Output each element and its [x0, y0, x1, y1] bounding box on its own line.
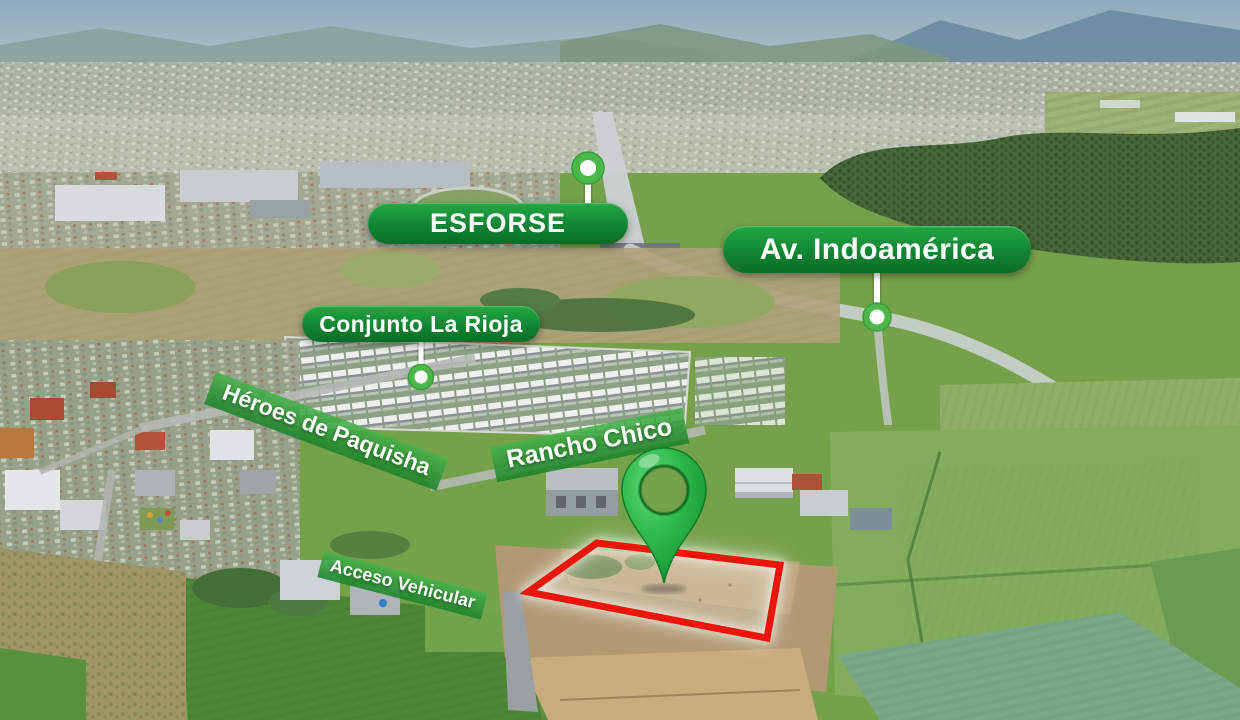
badge-label: ESFORSE: [430, 208, 566, 239]
badge-av-indoamerica: Av. Indoamérica: [723, 226, 1031, 273]
aerial-property-promo: Héroes de Paquisha Rancho Chico Acceso V…: [0, 0, 1240, 720]
aerial-photo: [0, 0, 1240, 720]
badge-esforse: ESFORSE: [368, 203, 628, 244]
badge-label: Av. Indoamérica: [760, 233, 994, 267]
badge-label: Conjunto La Rioja: [319, 311, 523, 338]
location-pin-icon: [616, 444, 712, 596]
badge-conjunto-la-rioja: Conjunto La Rioja: [302, 306, 540, 342]
